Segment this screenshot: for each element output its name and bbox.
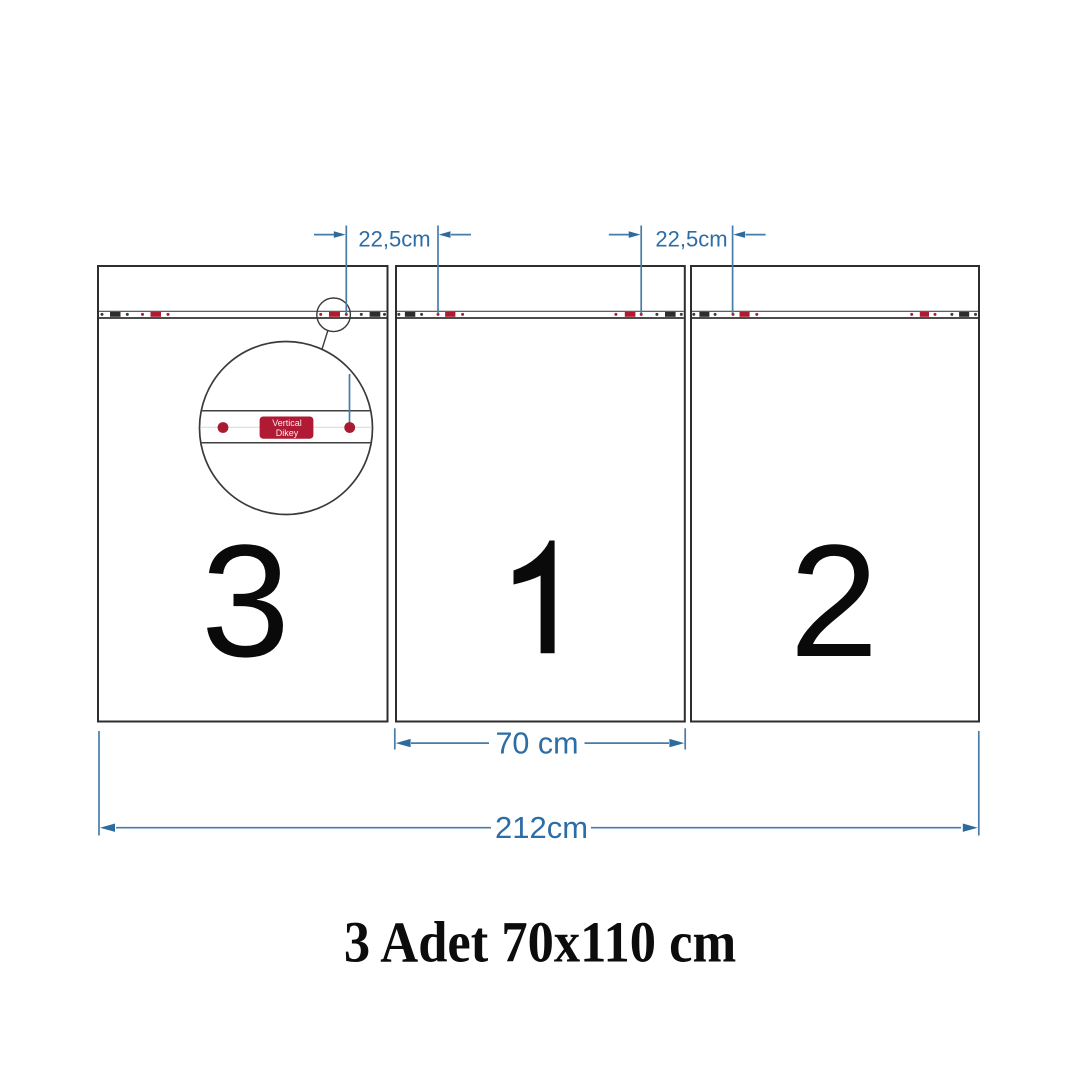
svg-text:2: 2 (790, 511, 879, 690)
svg-text:3 Adet 70x110 cm: 3 Adet 70x110 cm (344, 910, 736, 975)
svg-text:Dikey: Dikey (276, 428, 299, 438)
svg-text:70 cm: 70 cm (495, 726, 578, 760)
svg-text:Vertical: Vertical (272, 418, 302, 428)
svg-text:22,5cm: 22,5cm (358, 226, 430, 251)
svg-text:22,5cm: 22,5cm (655, 226, 727, 251)
svg-text:212cm: 212cm (495, 810, 588, 845)
svg-text:3: 3 (201, 511, 290, 690)
